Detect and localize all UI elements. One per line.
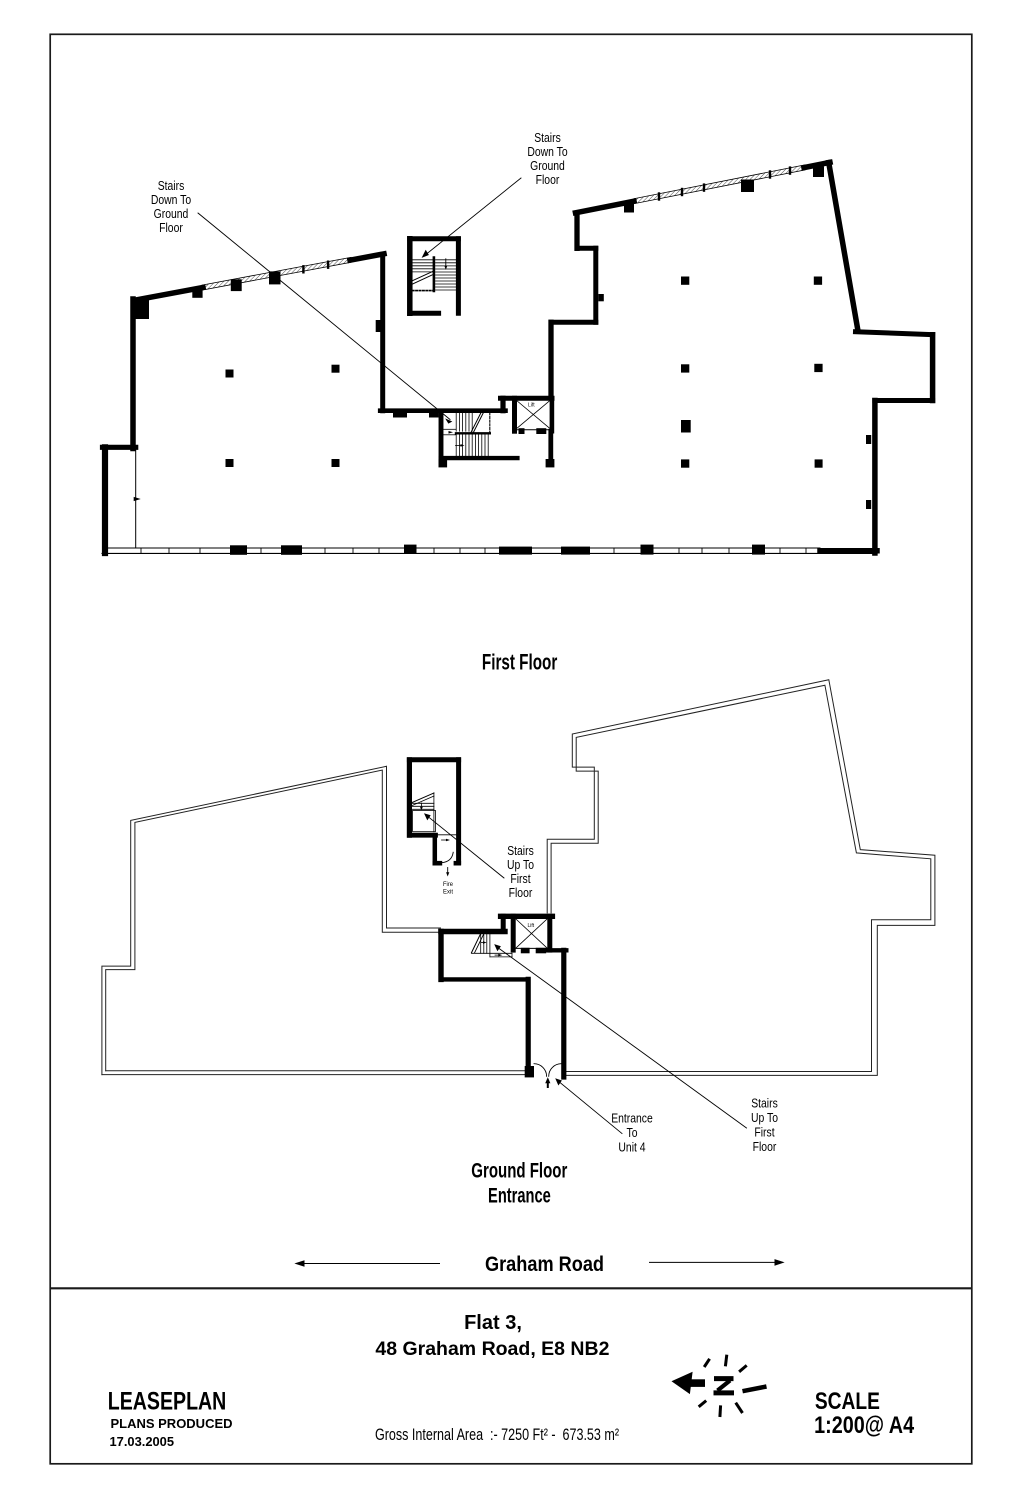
- svg-text:Down To: Down To: [527, 144, 567, 159]
- svg-text:Stairs: Stairs: [507, 843, 534, 858]
- svg-text:To: To: [627, 1125, 638, 1140]
- svg-text:Stairs: Stairs: [751, 1096, 778, 1111]
- svg-text:Floor: Floor: [159, 220, 183, 235]
- svg-text:Lift: Lift: [527, 923, 534, 929]
- svg-text:SCALE: SCALE: [815, 1388, 880, 1415]
- svg-text:PLANS PRODUCED: PLANS PRODUCED: [111, 1416, 233, 1431]
- svg-text:First: First: [754, 1125, 775, 1140]
- svg-text:Unit 4: Unit 4: [618, 1140, 645, 1155]
- svg-text:17.03.2005: 17.03.2005: [110, 1434, 175, 1449]
- svg-text:Floor: Floor: [536, 172, 560, 187]
- svg-text:Up To: Up To: [507, 857, 534, 872]
- svg-text:LEASEPLAN: LEASEPLAN: [108, 1387, 226, 1415]
- svg-text:First Floor: First Floor: [482, 650, 558, 675]
- svg-text:Gross Internal Area :- 7250 F: Gross Internal Area :- 7250 Ft² - 673.53…: [375, 1425, 619, 1444]
- svg-text:Entrance: Entrance: [611, 1111, 653, 1126]
- svg-text:Graham Road: Graham Road: [485, 1252, 604, 1276]
- svg-text:Ground: Ground: [154, 206, 189, 221]
- svg-text:First: First: [510, 871, 531, 886]
- svg-text:Floor: Floor: [753, 1139, 777, 1154]
- svg-text:Exit: Exit: [443, 890, 453, 896]
- svg-text:Floor: Floor: [509, 885, 533, 900]
- svg-text:Stairs: Stairs: [534, 130, 561, 145]
- svg-text:Ground: Ground: [530, 158, 565, 173]
- svg-text:48 Graham Road, E8 NB2: 48 Graham Road, E8 NB2: [375, 1338, 609, 1360]
- svg-text:Fire: Fire: [443, 882, 454, 888]
- svg-text:Up To: Up To: [751, 1110, 778, 1125]
- svg-text:Entrance: Entrance: [488, 1185, 551, 1208]
- svg-text:Lift: Lift: [528, 403, 535, 409]
- svg-text:Ground Floor: Ground Floor: [471, 1158, 567, 1182]
- svg-text:1:200@ A4: 1:200@ A4: [814, 1412, 915, 1439]
- svg-text:Stairs: Stairs: [158, 178, 185, 193]
- svg-text:Down To: Down To: [151, 192, 191, 207]
- svg-text:Flat 3,: Flat 3,: [464, 1312, 522, 1334]
